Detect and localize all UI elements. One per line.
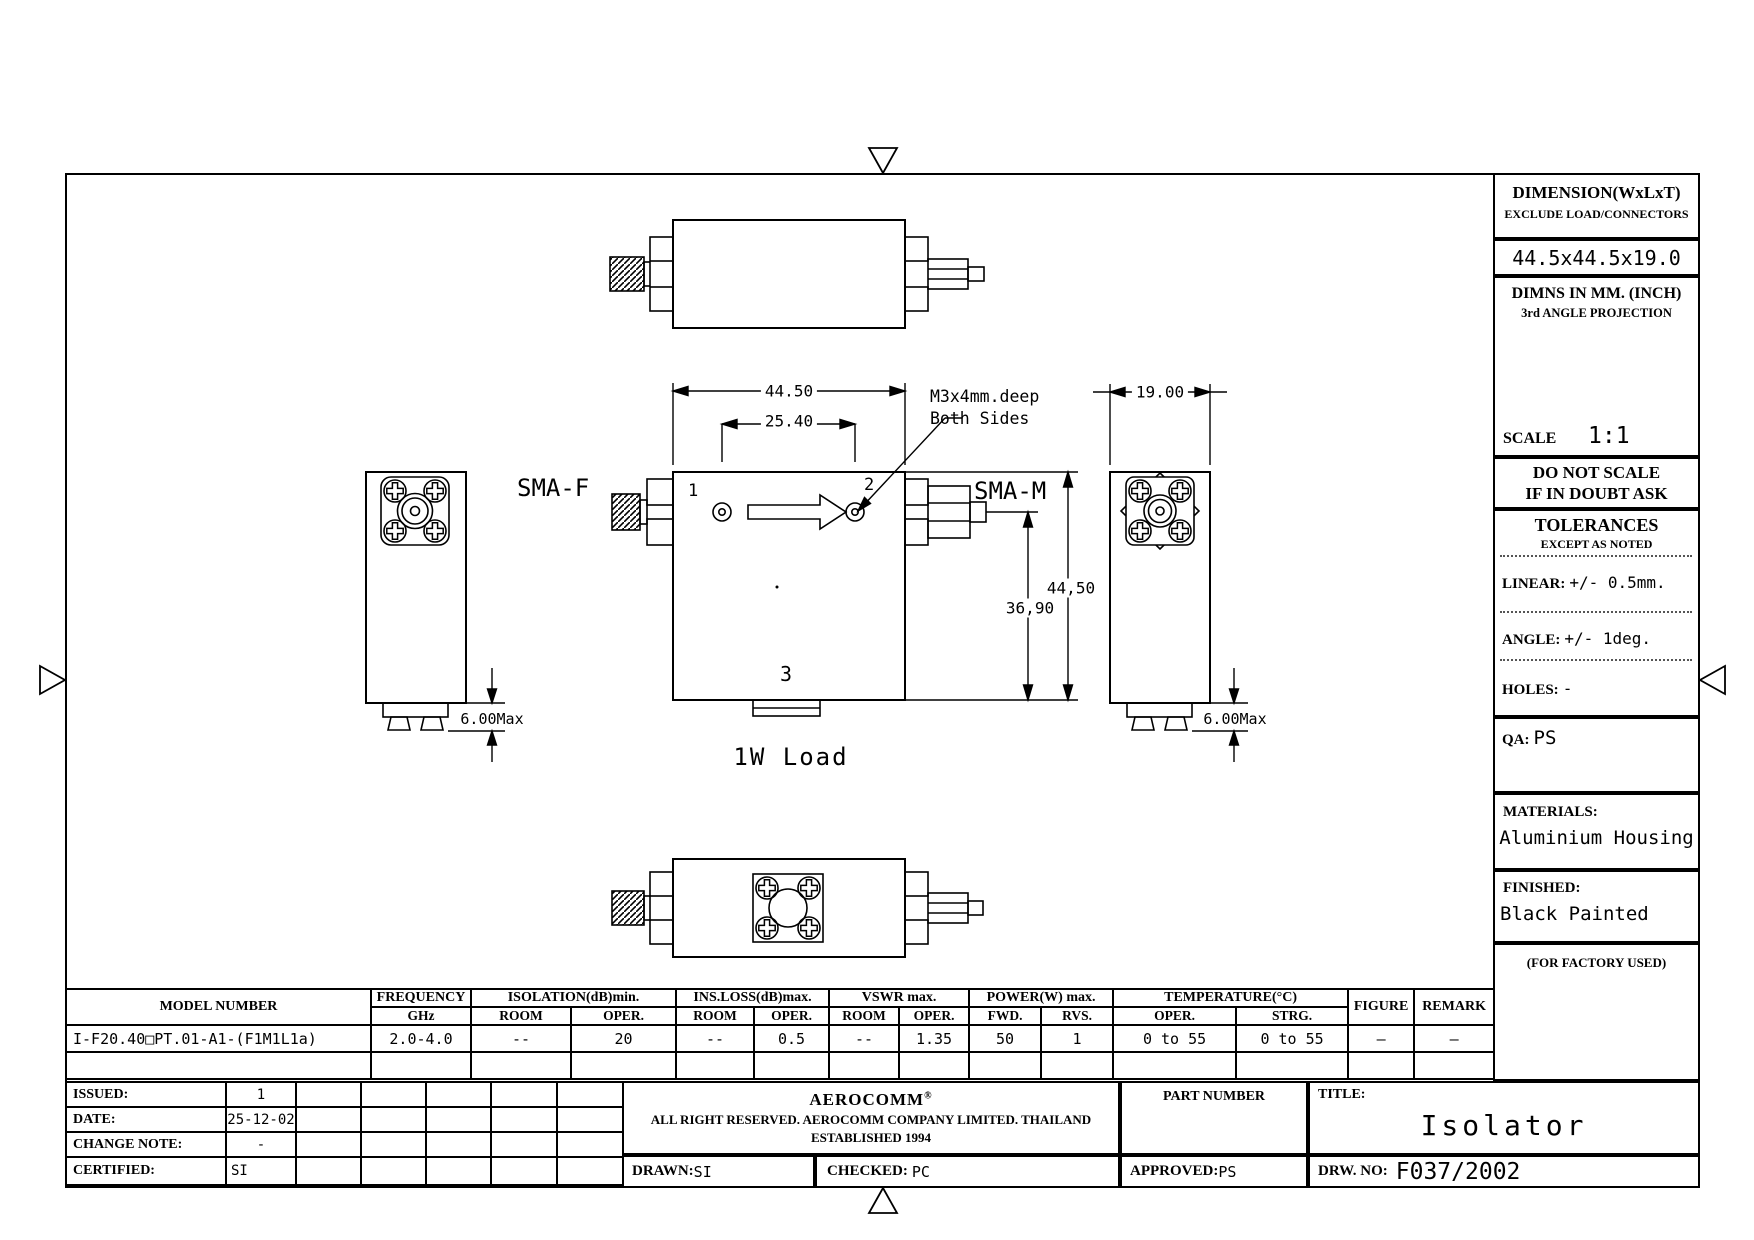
cell-vswr-room: -- bbox=[829, 1025, 899, 1052]
qa-label: QA: bbox=[1502, 732, 1530, 748]
spec-table: MODEL NUMBER FREQUENCY ISOLATION(dB)min.… bbox=[65, 988, 1495, 1080]
dimension-value: 44.5x44.5x19.0 bbox=[1512, 246, 1681, 270]
front-view bbox=[612, 472, 986, 716]
drawing-title: Isolator bbox=[1310, 1109, 1698, 1142]
col-vswr-oper: OPER. bbox=[899, 1007, 969, 1025]
dim-port-height: 36,90 bbox=[1002, 599, 1058, 618]
empty-cell bbox=[426, 1082, 491, 1107]
approved-box: APPROVED: PS bbox=[1120, 1155, 1308, 1188]
registered-mark: ® bbox=[924, 1090, 932, 1101]
checked-value: PC bbox=[912, 1163, 930, 1181]
empty-cell bbox=[557, 1132, 623, 1157]
empty-cell bbox=[1113, 1052, 1236, 1079]
empty-cell bbox=[1041, 1052, 1113, 1079]
dim-tab-left: 6.00Max bbox=[456, 710, 527, 728]
approved-value: PS bbox=[1218, 1163, 1236, 1181]
empty-cell bbox=[491, 1082, 557, 1107]
empty-cell bbox=[296, 1107, 361, 1132]
spec-empty-row bbox=[66, 1052, 1494, 1079]
sma-m-label: SMA-M bbox=[974, 477, 1046, 505]
empty-cell bbox=[296, 1132, 361, 1157]
tb-finished: FINISHED: Black Painted bbox=[1493, 870, 1700, 943]
warn-line1: DO NOT SCALE bbox=[1495, 463, 1698, 483]
empty-cell bbox=[491, 1157, 557, 1185]
col-rvs: RVS. bbox=[1041, 1007, 1113, 1025]
empty-cell bbox=[754, 1052, 829, 1079]
company-name: AEROCOMM bbox=[809, 1090, 924, 1109]
empty-cell bbox=[1348, 1052, 1414, 1079]
port1-label: 1 bbox=[688, 481, 698, 501]
dim-tab-right: 6.00Max bbox=[1199, 710, 1270, 728]
scale-value: 1:1 bbox=[1588, 423, 1630, 449]
change-note-value: - bbox=[226, 1132, 296, 1157]
cell-model: I-F20.40□PT.01-A1-(F1M1L1a) bbox=[66, 1025, 371, 1052]
certified-value: SI bbox=[226, 1157, 296, 1185]
dim-port-spacing: 25.40 bbox=[761, 412, 817, 431]
company-line1: ALL RIGHT RESERVED. AEROCOMM COMPANY LIM… bbox=[651, 1112, 1091, 1128]
empty-cell bbox=[557, 1107, 623, 1132]
angle-value: +/- 1deg. bbox=[1564, 629, 1651, 648]
drawing-sheet: SMA-F SMA-M 1 2 3 1W Load M3x4mm.deep Bo… bbox=[0, 0, 1754, 1240]
dimension-label: DIMENSION(WxLxT) bbox=[1495, 183, 1698, 203]
holes-label: HOLES: bbox=[1502, 682, 1559, 698]
tb-dimension: DIMENSION(WxLxT) EXCLUDE LOAD/CONNECTORS bbox=[1493, 173, 1700, 239]
holes-value: - bbox=[1563, 679, 1573, 698]
port3-label: 3 bbox=[780, 662, 792, 686]
divider bbox=[1500, 659, 1692, 661]
tb-tolerances: TOLERANCES EXCEPT AS NOTED LINEAR: +/- 0… bbox=[1493, 509, 1700, 717]
company-line2: ESTABLISHED 1994 bbox=[811, 1130, 931, 1146]
divider bbox=[1500, 555, 1692, 557]
empty-cell bbox=[676, 1052, 754, 1079]
cell-figure: — bbox=[1348, 1025, 1414, 1052]
revision-row: DATE: 25-12-02 bbox=[66, 1107, 623, 1132]
cell-ins-oper: 0.5 bbox=[754, 1025, 829, 1052]
issued-value: 1 bbox=[226, 1082, 296, 1107]
tb-factory-note: (FOR FACTORY USED) bbox=[1493, 943, 1700, 1081]
tb-do-not-scale: DO NOT SCALE IF IN DOUBT ASK bbox=[1493, 457, 1700, 509]
certified-label: CERTIFIED: bbox=[66, 1157, 226, 1185]
revision-row: CHANGE NOTE: - bbox=[66, 1132, 623, 1157]
company-block: AEROCOMM® ALL RIGHT RESERVED. AEROCOMM C… bbox=[622, 1081, 1120, 1155]
drawn-label: DRAWN: bbox=[632, 1163, 694, 1180]
cell-iso-oper: 20 bbox=[571, 1025, 676, 1052]
title-label: TITLE: bbox=[1318, 1087, 1365, 1103]
col-iso-room: ROOM bbox=[471, 1007, 571, 1025]
materials-value: Aluminium Housing bbox=[1495, 827, 1698, 849]
bottom-view bbox=[612, 859, 983, 957]
date-label: DATE: bbox=[66, 1107, 226, 1132]
empty-cell bbox=[361, 1157, 426, 1185]
tb-qa: QA: PS bbox=[1493, 717, 1700, 793]
col-ghz: GHz bbox=[371, 1007, 471, 1025]
sma-f-label: SMA-F bbox=[517, 474, 589, 502]
empty-cell bbox=[829, 1052, 899, 1079]
col-temperature: TEMPERATURE(°C) bbox=[1113, 989, 1348, 1007]
col-power: POWER(W) max. bbox=[969, 989, 1113, 1007]
revision-row: ISSUED: 1 bbox=[66, 1082, 623, 1107]
issued-label: ISSUED: bbox=[66, 1082, 226, 1107]
empty-cell bbox=[361, 1132, 426, 1157]
drawn-box: DRAWN: SI bbox=[622, 1155, 815, 1188]
drw-no-label: DRW. NO: bbox=[1318, 1163, 1388, 1180]
empty-cell bbox=[491, 1107, 557, 1132]
units-line2: 3rd ANGLE PROJECTION bbox=[1495, 306, 1698, 321]
empty-cell bbox=[491, 1132, 557, 1157]
empty-cell bbox=[557, 1082, 623, 1107]
col-remark: REMARK bbox=[1414, 989, 1494, 1025]
cell-pwr-rvs: 1 bbox=[1041, 1025, 1113, 1052]
drawn-value: SI bbox=[694, 1163, 712, 1181]
empty-cell bbox=[296, 1157, 361, 1185]
drw-no-value: F037/2002 bbox=[1396, 1159, 1521, 1185]
empty-cell bbox=[66, 1052, 371, 1079]
materials-label: MATERIALS: bbox=[1503, 804, 1698, 821]
empty-cell bbox=[899, 1052, 969, 1079]
empty-cell bbox=[426, 1132, 491, 1157]
part-number-label: PART NUMBER bbox=[1122, 1089, 1306, 1105]
cell-temp-strg: 0 to 55 bbox=[1236, 1025, 1348, 1052]
empty-cell bbox=[1414, 1052, 1494, 1079]
revision-row: CERTIFIED: SI bbox=[66, 1157, 623, 1185]
cell-pwr-fwd: 50 bbox=[969, 1025, 1041, 1052]
factory-note: (FOR FACTORY USED) bbox=[1495, 955, 1698, 971]
empty-cell bbox=[969, 1052, 1041, 1079]
empty-cell bbox=[371, 1052, 471, 1079]
col-model-number: MODEL NUMBER bbox=[66, 989, 371, 1025]
cell-vswr-oper: 1.35 bbox=[899, 1025, 969, 1052]
finished-label: FINISHED: bbox=[1503, 880, 1698, 897]
col-ins-oper: OPER. bbox=[754, 1007, 829, 1025]
cell-freq: 2.0-4.0 bbox=[371, 1025, 471, 1052]
empty-cell bbox=[361, 1082, 426, 1107]
warn-line2: IF IN DOUBT ASK bbox=[1495, 484, 1698, 504]
col-figure: FIGURE bbox=[1348, 989, 1414, 1025]
right-side-view bbox=[1110, 472, 1210, 730]
angle-label: ANGLE: bbox=[1502, 632, 1560, 648]
cell-iso-room: -- bbox=[471, 1025, 571, 1052]
cell-remark: — bbox=[1414, 1025, 1494, 1052]
units-line1: DIMNS IN MM. (INCH) bbox=[1495, 285, 1698, 303]
drw-no-box: DRW. NO: F037/2002 bbox=[1308, 1155, 1700, 1188]
col-vswr: VSWR max. bbox=[829, 989, 969, 1007]
tb-materials: MATERIALS: Aluminium Housing bbox=[1493, 793, 1700, 870]
linear-value: +/- 0.5mm. bbox=[1569, 573, 1665, 592]
empty-cell bbox=[471, 1052, 571, 1079]
approved-label: APPROVED: bbox=[1130, 1163, 1218, 1180]
qa-value: PS bbox=[1534, 727, 1557, 749]
dim-front-height: 44,50 bbox=[1043, 579, 1099, 598]
empty-cell bbox=[296, 1082, 361, 1107]
finished-value: Black Painted bbox=[1500, 903, 1698, 925]
port2-label: 2 bbox=[864, 475, 874, 495]
col-frequency: FREQUENCY bbox=[371, 989, 471, 1007]
col-fwd: FWD. bbox=[969, 1007, 1041, 1025]
empty-cell bbox=[426, 1157, 491, 1185]
linear-label: LINEAR: bbox=[1502, 576, 1565, 592]
col-temp-oper: OPER. bbox=[1113, 1007, 1236, 1025]
empty-cell bbox=[571, 1052, 676, 1079]
tb-units: DIMNS IN MM. (INCH) 3rd ANGLE PROJECTION… bbox=[1493, 276, 1700, 457]
screw-note-line1: M3x4mm.deep bbox=[930, 387, 1039, 406]
empty-cell bbox=[426, 1107, 491, 1132]
col-isolation: ISOLATION(dB)min. bbox=[471, 989, 676, 1007]
tolerances-title: TOLERANCES bbox=[1495, 515, 1698, 536]
empty-cell bbox=[557, 1157, 623, 1185]
dim-side-width: 19.00 bbox=[1132, 383, 1188, 402]
load-label: 1W Load bbox=[733, 743, 848, 771]
empty-cell bbox=[1236, 1052, 1348, 1079]
checked-box: CHECKED: PC bbox=[815, 1155, 1120, 1188]
cell-ins-room: -- bbox=[676, 1025, 754, 1052]
screw-note-line2: Both Sides bbox=[930, 409, 1029, 428]
divider bbox=[1500, 611, 1692, 613]
col-vswr-room: ROOM bbox=[829, 1007, 899, 1025]
part-number-box: PART NUMBER bbox=[1120, 1081, 1308, 1155]
top-view bbox=[610, 220, 984, 328]
col-ins-room: ROOM bbox=[676, 1007, 754, 1025]
title-box: TITLE: Isolator bbox=[1308, 1081, 1700, 1155]
tb-dimension-value: 44.5x44.5x19.0 bbox=[1493, 239, 1700, 276]
date-value: 25-12-02 bbox=[226, 1107, 296, 1132]
col-iso-oper: OPER. bbox=[571, 1007, 676, 1025]
col-temp-strg: STRG. bbox=[1236, 1007, 1348, 1025]
spec-row: I-F20.40□PT.01-A1-(F1M1L1a) 2.0-4.0 -- 2… bbox=[66, 1025, 1494, 1052]
dimension-note: EXCLUDE LOAD/CONNECTORS bbox=[1495, 207, 1698, 222]
scale-label: SCALE bbox=[1503, 430, 1556, 448]
checked-label: CHECKED: bbox=[827, 1163, 908, 1180]
left-side-view bbox=[366, 472, 466, 730]
tolerances-sub: EXCEPT AS NOTED bbox=[1495, 537, 1698, 552]
empty-cell bbox=[361, 1107, 426, 1132]
revision-block: ISSUED: 1 DATE: 25-12-02 CHANGE NOTE: - … bbox=[65, 1081, 624, 1186]
dim-front-width: 44.50 bbox=[761, 382, 817, 401]
change-note-label: CHANGE NOTE: bbox=[66, 1132, 226, 1157]
dimension-lines bbox=[448, 383, 1248, 762]
col-ins-loss: INS.LOSS(dB)max. bbox=[676, 989, 829, 1007]
cell-temp-oper: 0 to 55 bbox=[1113, 1025, 1236, 1052]
